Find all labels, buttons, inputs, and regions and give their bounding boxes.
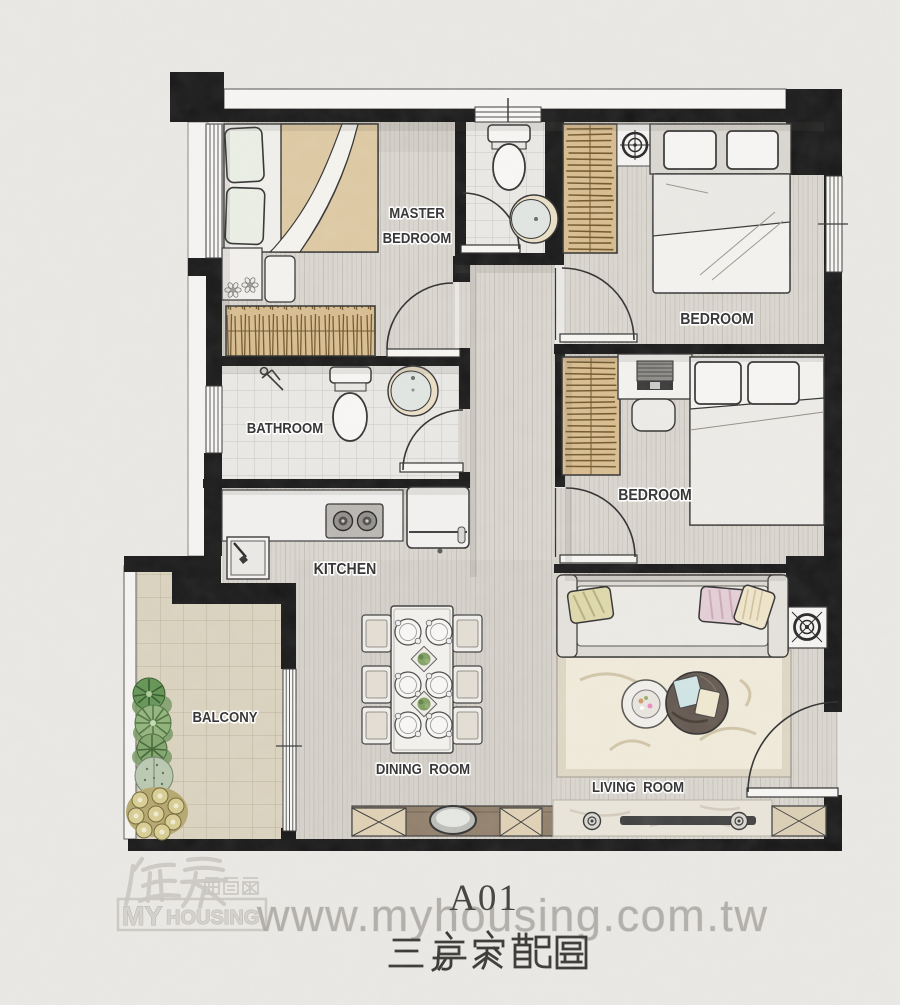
svg-text:BATHROOM: BATHROOM xyxy=(247,419,323,436)
svg-text:BEDROOM: BEDROOM xyxy=(383,229,452,246)
svg-text:MY: MY xyxy=(122,901,163,931)
svg-text:BEDROOM: BEDROOM xyxy=(680,310,754,328)
svg-text:BEDROOM: BEDROOM xyxy=(618,486,692,504)
svg-text:A01: A01 xyxy=(449,878,519,919)
svg-text:HOUSING: HOUSING xyxy=(166,907,259,929)
svg-text:BALCONY: BALCONY xyxy=(192,708,258,725)
svg-text:MASTER: MASTER xyxy=(389,204,445,221)
svg-text:LIVING ROOM: LIVING ROOM xyxy=(592,778,684,795)
svg-text:KITCHEN: KITCHEN xyxy=(314,560,377,578)
svg-text:DINING ROOM: DINING ROOM xyxy=(376,760,470,777)
